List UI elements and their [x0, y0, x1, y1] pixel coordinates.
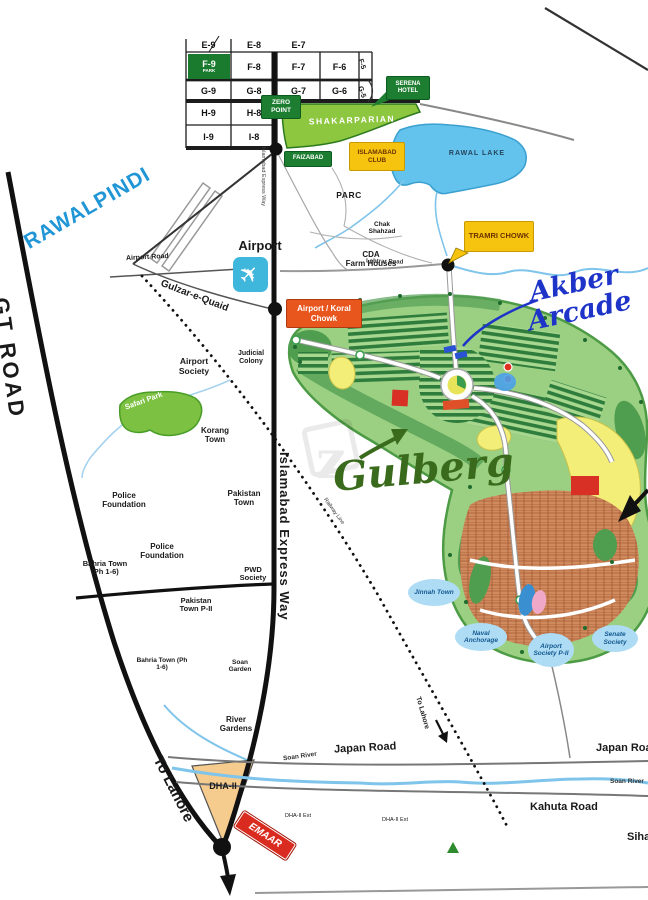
faizabad-tag: FAIZABAD — [284, 151, 332, 167]
airport-icon: ✈ — [233, 257, 268, 292]
islamabad-club-tag: ISLAMABAD CLUB — [349, 142, 405, 171]
korang-town-label: Korang Town — [192, 427, 238, 445]
rawal-lake-label: RAWAL LAKE — [438, 150, 516, 158]
river-gardens-label: River Gardens — [214, 716, 258, 734]
tramri-chowk-tag: TRAMRI CHOWK — [464, 221, 534, 252]
zero-point-tag: ZERO POINT — [261, 95, 301, 119]
dha2-ext-1-label: DHA-II Ext — [283, 813, 313, 819]
lehtrar-road-label: Lehtrar Road — [366, 258, 404, 266]
islamabad-express-way-small-label: Islamabad Express Way — [260, 147, 266, 206]
sihala-label: Sihala — [627, 831, 648, 843]
airport-society-label: Airport Society — [168, 357, 220, 376]
senate-society-oval: Senate Society — [592, 625, 638, 652]
kahuta-road-label: Kahuta Road — [530, 801, 598, 813]
sector-e8: E-8 — [231, 39, 277, 51]
lahore-junction-dot — [213, 838, 231, 856]
sector-h9: H-9 — [186, 102, 231, 124]
dha2-label: DHA-II — [196, 781, 250, 791]
airport-label: Airport — [224, 239, 296, 254]
gulberg-location-map: z E-9 E-8 E-7 F-9 PARK F-8 F-7 F-6 F-5 G… — [0, 0, 648, 900]
soan-river-2-label: Soan River — [610, 778, 644, 785]
pakistan-town-label: Pakistan Town — [218, 490, 270, 508]
parc-label: PARC — [328, 191, 370, 201]
pwd-society-label: PWD Society — [233, 566, 273, 583]
chak-shahzad-label: Chak Shahzad — [362, 221, 402, 236]
judicial-colony-label: Judicial Colony — [228, 350, 274, 366]
sector-f9-park-label: PARK — [203, 69, 215, 74]
police-foundation-1-label: Police Foundation — [94, 492, 154, 510]
serena-hotel-tag: SERENA HOTEL — [386, 76, 430, 100]
bahria-town-2-label: Bahria Town (Ph 1-6) — [134, 657, 190, 672]
sector-f8: F-8 — [231, 53, 277, 80]
bahria-town-1-label: Bahria Town (Ph 1-6) — [76, 560, 134, 577]
sector-i8: I-8 — [231, 126, 277, 147]
sector-f7: F-7 — [277, 53, 320, 80]
sector-e9: E-9 — [186, 39, 231, 51]
sector-g9: G-9 — [186, 81, 231, 100]
japan-road-2-label: Japan Road — [596, 742, 648, 754]
jinnah-town-oval: Jinnah Town — [408, 579, 460, 606]
map-base-svg: z — [0, 0, 648, 900]
dha2-ext-2-label: DHA-II Ext — [380, 817, 410, 823]
green-marker — [447, 842, 459, 853]
airport-society-p2-oval: Airport Society P-II — [528, 633, 574, 667]
koral-chowk-dot — [268, 302, 282, 316]
sector-e7: E-7 — [277, 39, 320, 51]
sector-i9: I-9 — [186, 126, 231, 147]
pakistan-town-p2-label: Pakistan Town P-II — [178, 597, 214, 614]
airport-koral-chowk-tag: Airport / Koral Chowk — [286, 299, 362, 328]
rawal-lake — [391, 124, 527, 193]
soan-garden-label: Soan Garden — [222, 659, 258, 674]
airplane-icon: ✈ — [235, 259, 266, 290]
islamabad-express-way-label: Islamabad Express Way — [276, 452, 291, 621]
sector-f9-park: F-9 PARK — [188, 54, 230, 79]
police-foundation-2-label: Police Foundation — [132, 543, 192, 561]
naval-anchorage-oval: Naval Anchorage — [455, 623, 507, 651]
